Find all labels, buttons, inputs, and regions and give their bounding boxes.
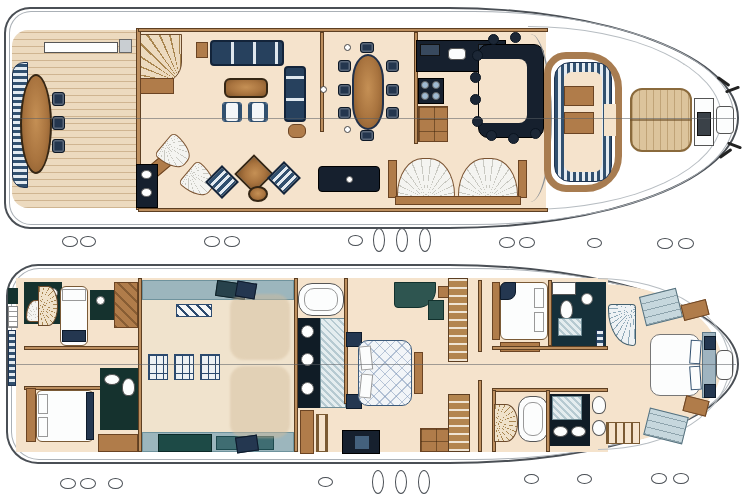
foredeck-hatch [716,106,734,134]
stove-burner [432,81,440,89]
master-tv [355,436,369,449]
porthole-icon [519,237,535,248]
salon-armchair [222,102,242,122]
master-fwd-bulkhead [478,380,482,452]
bathtub-inner [523,402,543,436]
porthole-icon [395,470,407,494]
sink-icon [581,293,593,305]
aft-deck-box [119,39,132,53]
bow-locker-door [716,350,733,380]
guest-pillow [534,288,544,308]
dining-chair [338,60,351,72]
bar-stool [488,34,499,45]
salon-side-table [196,42,208,58]
guest-bath-cabinet [552,282,576,295]
stove-burner [421,92,429,100]
vip-bath-marble [552,396,582,420]
crew-wall [24,346,140,350]
door-hinge [344,44,351,51]
porthole-icon [673,473,689,484]
bar-stool [510,32,521,43]
guest-blanket [500,282,516,300]
porthole-icon [373,228,385,252]
companionway-steps [606,422,640,444]
crew-wardrobe [98,434,138,452]
porthole-icon [499,237,515,248]
porthole-icon [62,236,78,247]
sink-icon [301,382,314,395]
master-pillow [359,345,373,370]
guest-headboard [492,282,500,340]
crew-wardrobe [114,282,138,328]
dining-chair [360,42,374,53]
vip-pillow [689,366,702,391]
porthole-icon [678,238,694,249]
vip-pillow [689,340,702,365]
transom-steps [8,306,18,328]
porthole-icon [419,228,431,252]
crew-bathroom-2 [90,290,114,320]
aft-deck-chair [52,139,65,153]
guest-bath-marble [558,318,582,336]
floor-grille [148,354,168,380]
crew-pillow [38,417,48,437]
porthole-icon [204,236,220,247]
door-hinge [344,126,351,133]
master-dressing-cabinet [300,410,314,454]
galley-sink [448,48,466,60]
transom-locker [8,288,18,304]
aft-deck-oval-table [20,74,52,174]
aft-deck-locker [44,42,118,53]
stove-burner [421,81,429,89]
porthole-icon [418,470,430,494]
sink-icon [553,426,568,437]
toilet-icon [560,300,573,319]
engine-icon [230,294,290,360]
master-tv-cabinet [342,430,380,454]
engine-icon [230,366,290,438]
master-fwd-bulkhead [478,280,482,352]
deckhouse-top-wall [138,28,548,32]
main-deck-centerline [10,118,736,119]
deckhouse-bottom-wall [138,208,548,212]
porthole-icon [348,235,363,246]
crew-pillow [38,394,48,414]
dining-chair [338,84,351,96]
galley-appliance [420,44,440,56]
porthole-icon [587,238,602,248]
bidet-icon [592,420,606,436]
bow-console-unit [697,112,711,136]
master-bath-marble [320,318,346,408]
vip-bath-wall [492,388,608,392]
sun-pad-divider [630,119,692,121]
porthole-icon [577,474,592,484]
crew-sink [96,296,105,305]
master-foot-bench [414,352,423,394]
stove-burner [432,92,440,100]
toilet-icon [122,378,135,396]
porthole-icon [657,238,673,249]
stairs-icon [494,404,518,442]
bar-sink [141,188,152,197]
guest-wall [492,346,608,350]
bathtub-icon [518,396,548,442]
dining-bulkhead [320,32,324,132]
tv-logo [346,176,353,183]
salon-round-table [248,186,268,202]
salon-coffee-table [224,78,268,98]
master-dressing-lockers [316,414,328,452]
crew-bed-trim [86,392,94,440]
master-pillow [359,373,373,398]
porthole-icon [224,236,240,247]
sink-icon [571,426,586,437]
porthole-icon [108,478,123,489]
toilet-icon [592,396,606,414]
bar-stool [472,50,483,61]
salon-corner-table [288,124,306,138]
sofa-frame [518,160,527,198]
bar-sink [141,170,152,179]
helm-bar-floor [479,59,527,123]
salon-sofa [210,40,284,66]
crew-headboard [26,388,36,442]
fuel-tank [158,434,212,452]
guest-pillow [534,312,544,332]
bow-settee-opening [604,104,616,136]
salon-staircase-fan [140,34,182,84]
stair-cabinet [140,78,174,94]
swim-ladder [8,330,16,386]
crew-pillow [62,289,86,301]
yacht-deck-plans [0,0,744,496]
lower-deck-centerline [12,364,736,365]
vip-nightstand [704,336,716,350]
sink-icon [301,325,314,338]
master-wardrobe [448,394,470,452]
bow-cockpit-table [564,112,594,134]
porthole-icon [318,477,333,487]
salon-armchair [248,102,268,122]
porthole-icon [60,478,76,489]
bathtub-inner [304,288,338,311]
porthole-icon [524,474,539,484]
floor-grille [200,354,220,380]
hatch-grille [176,304,212,317]
bar-stool [486,130,497,141]
salon-chaise [284,66,306,122]
dining-chair [360,130,374,141]
crew-sink-oval [104,374,120,385]
porthole-icon [372,470,384,494]
porthole-icon [651,473,667,484]
porthole-icon [80,236,96,247]
porthole-icon [396,228,408,252]
machinery-box [235,435,259,454]
bow-cockpit-table [564,86,594,106]
dining-chair [386,84,399,96]
crew-bed-blanket [62,330,86,342]
door-hinge [320,86,327,93]
aft-deck-chair [52,92,65,106]
floor-grille [174,354,194,380]
sofa-frame [388,160,397,198]
master-sofa-return [428,300,444,320]
sofa-base [395,196,521,205]
porthole-icon [80,478,96,489]
crew-spiral-stairs [38,286,58,326]
vip-nightstand [704,384,716,398]
machinery-box [235,280,257,299]
dining-chair [386,60,399,72]
bar-stool [470,72,481,83]
bar-stool [470,94,481,105]
galley-cabinet [418,106,448,142]
stairs-icon [448,278,468,362]
bar-stool [508,133,519,144]
bathtub-icon [298,283,344,316]
